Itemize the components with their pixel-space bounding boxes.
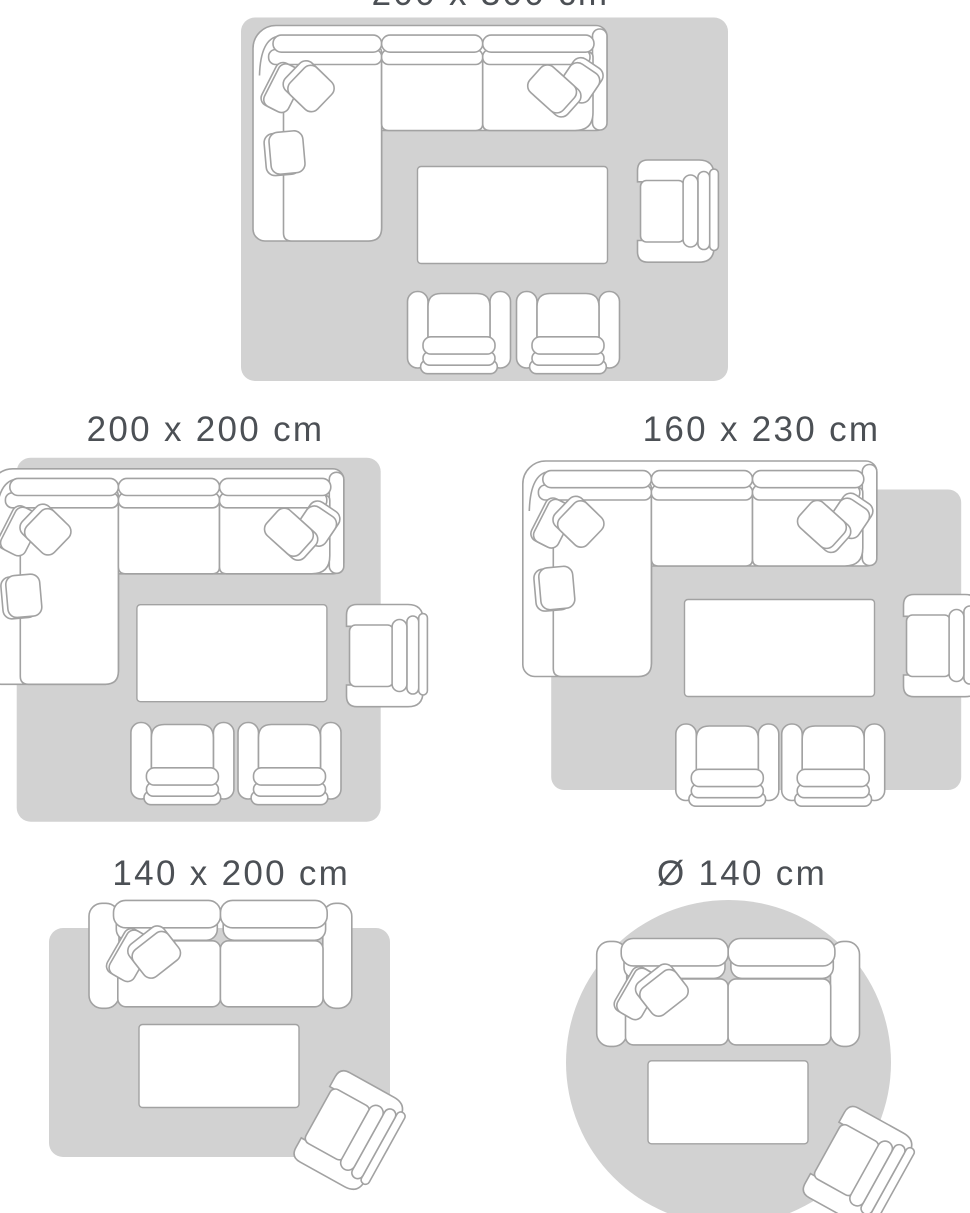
svg-text:Ø 140 cm: Ø 140 cm [657, 854, 827, 893]
svg-text:200 x 200 cm: 200 x 200 cm [87, 410, 325, 449]
svg-text:200 x 300 cm: 200 x 300 cm [372, 0, 610, 13]
svg-text:140 x 200 cm: 140 x 200 cm [112, 854, 350, 893]
svg-text:160 x 230 cm: 160 x 230 cm [643, 410, 881, 449]
